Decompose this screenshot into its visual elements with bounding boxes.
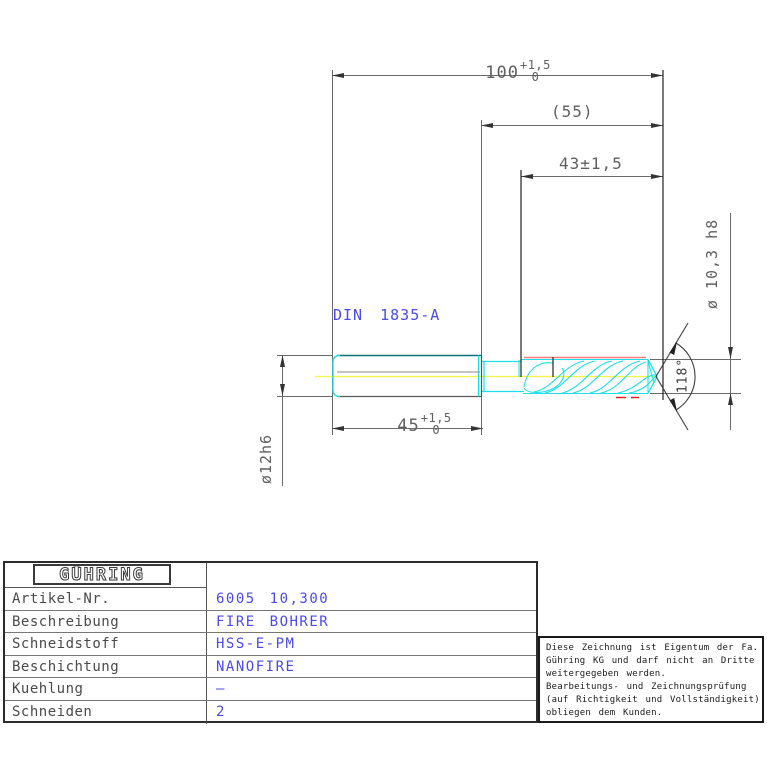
dim-overall-length: 100+1,50 [464,44,551,87]
dim-overall-length-tol-lower: 0 [520,71,551,83]
dim-point-angle: 118° [676,352,691,400]
ownership-notice: Diese Zeichnung ist Eigentum der Fa. Güh… [538,636,764,723]
notice-line: Diese Zeichnung ist Eigentum der Fa. [546,642,759,655]
row-label: Kuehlung [5,678,207,700]
technical-drawing-page: { "drawing": { "din_label": "DIN 1835-A"… [0,0,767,767]
notice-line: obliegen dem Kunden. [546,707,759,720]
row-value: NANOFIRE [207,656,536,678]
dim-shank-length: 45+1,50 [376,397,452,440]
title-block-row: Beschichtung NANOFIRE [5,656,536,679]
row-value: HSS-E-PM [207,633,536,655]
row-label: Schneidstoff [5,633,207,655]
notice-line: Gühring KG und darf nicht an Dritte [546,655,759,668]
guehring-logo-text: GÜHRING [59,566,145,583]
row-label: Schneiden [5,701,207,724]
row-value: FIRE BOHRER [207,611,536,633]
dim-flute-length: 43±1,5 [559,155,623,173]
logo-row: GÜHRING [5,563,207,588]
title-block-row: Schneidstoff HSS-E-PM [5,633,536,656]
title-block: GÜHRING Artikel-Nr. 6005 10,300 Beschrei… [3,561,538,723]
dimension-lines [332,76,663,429]
title-block-row: Schneiden 2 [5,701,536,724]
dim-shank-length-value: 45 [397,416,419,436]
logo-box: GÜHRING [33,564,171,585]
title-block-row: Beschreibung FIRE BOHRER [5,611,536,634]
title-block-row: Kuehlung – [5,678,536,701]
row-label: Beschreibung [5,611,207,633]
dimension-arrows [280,73,733,431]
notice-line: Bearbeitungs- und Zeichnungsprüfung [546,681,759,694]
row-value: 6005 10,300 [207,588,536,610]
guehring-logo: GÜHRING [35,566,169,583]
row-label: Artikel-Nr. [5,588,207,610]
dim-shank-diameter: ø12h6 [257,415,275,503]
row-label: Beschichtung [5,656,207,678]
dim-ref-length: (55) [551,103,594,121]
dim-drill-diameter: ø 10,3 h8 [703,208,721,320]
row-value: – [207,678,536,700]
extension-lines [277,70,741,486]
row-value: 2 [207,701,536,724]
dim-shank-length-tol-lower: 0 [421,424,452,436]
notice-line: weitergegeben werden. [546,668,759,681]
notice-line: (auf Richtigkeit und Vollständigkeit) [546,694,759,707]
din-standard-label: DIN 1835-A [333,306,440,324]
dim-overall-length-value: 100 [485,63,519,83]
title-block-row: Artikel-Nr. 6005 10,300 [5,588,536,611]
